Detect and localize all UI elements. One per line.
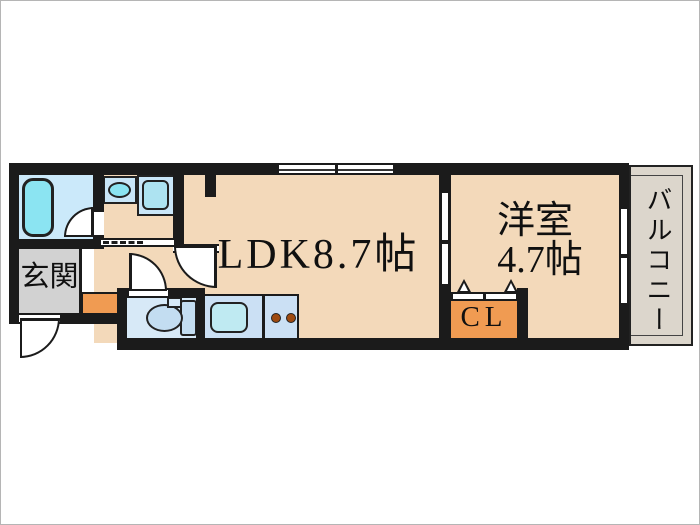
bathroom-doorway xyxy=(93,210,104,237)
wall-closet-right xyxy=(517,288,528,338)
balcony-window-lower xyxy=(620,257,628,304)
bedroom-sliding-door-upper xyxy=(441,192,449,241)
bedroom-name-label: 洋室 xyxy=(479,202,591,240)
entrance-label: 玄関 xyxy=(19,263,80,292)
wall-washroom-right xyxy=(173,163,184,244)
bathtub xyxy=(22,178,54,237)
floor-plan: 玄関 LDK8.7帖 洋室 4.7帖 CL バルコニー xyxy=(0,0,700,525)
washbasin-bowl xyxy=(108,182,131,198)
kitchen-sink xyxy=(210,302,248,333)
ldk-top-window-tick xyxy=(335,165,338,173)
washroom-curtain-track xyxy=(101,238,174,247)
washing-machine xyxy=(142,180,169,210)
closet-label: CL xyxy=(451,303,517,332)
washroom-curtain-dashes xyxy=(103,241,143,244)
kitchen-counter-divider xyxy=(262,294,265,340)
stove-burner-right xyxy=(286,313,296,323)
balcony-window-upper xyxy=(620,208,628,255)
washbasin xyxy=(103,176,137,204)
ldk-top-window xyxy=(277,163,395,175)
ldk-label: LDK8.7帖 xyxy=(196,234,441,276)
washing-machine-pan xyxy=(137,175,175,216)
wall-stub-ldk xyxy=(205,175,216,197)
toilet-cistern xyxy=(167,297,182,308)
closet-fold-mark-left-inner xyxy=(460,283,468,291)
wall-bath-bottom xyxy=(9,239,104,249)
closet-door-panel-left xyxy=(451,292,485,301)
balcony-label: バルコニー xyxy=(642,178,670,343)
wall-toilet-right xyxy=(196,288,205,341)
stove-burner-left xyxy=(271,313,281,323)
wall-bottom xyxy=(117,338,629,350)
wall-toilet-left xyxy=(117,288,127,341)
closet-fold-mark-right-inner xyxy=(507,283,515,291)
bedroom-sliding-door-lower xyxy=(441,243,449,285)
entrance-door-swing xyxy=(20,318,60,358)
toilet-bowl xyxy=(146,304,183,332)
closet-door-panel-right xyxy=(484,292,518,301)
bedroom-size-label: 4.7帖 xyxy=(479,241,601,279)
